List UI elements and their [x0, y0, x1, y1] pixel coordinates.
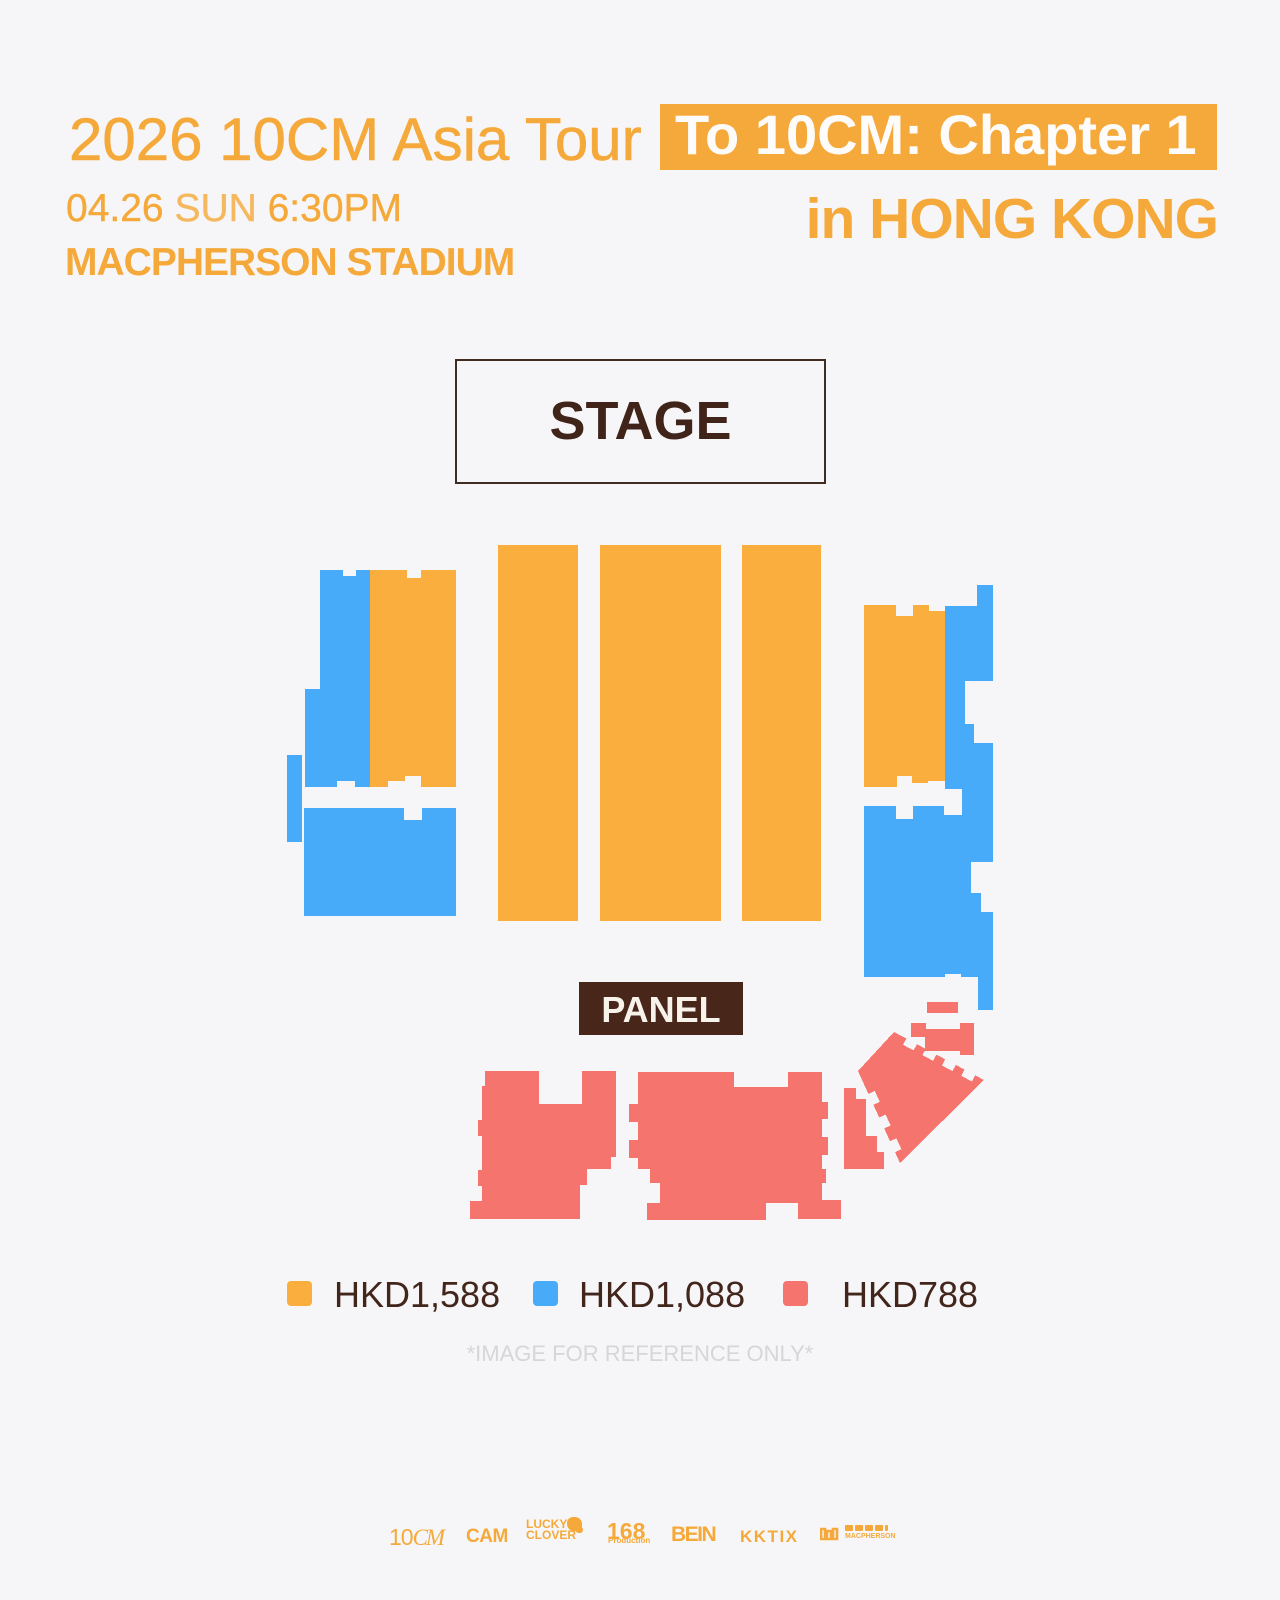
svg-text:PANEL: PANEL: [601, 989, 720, 1030]
